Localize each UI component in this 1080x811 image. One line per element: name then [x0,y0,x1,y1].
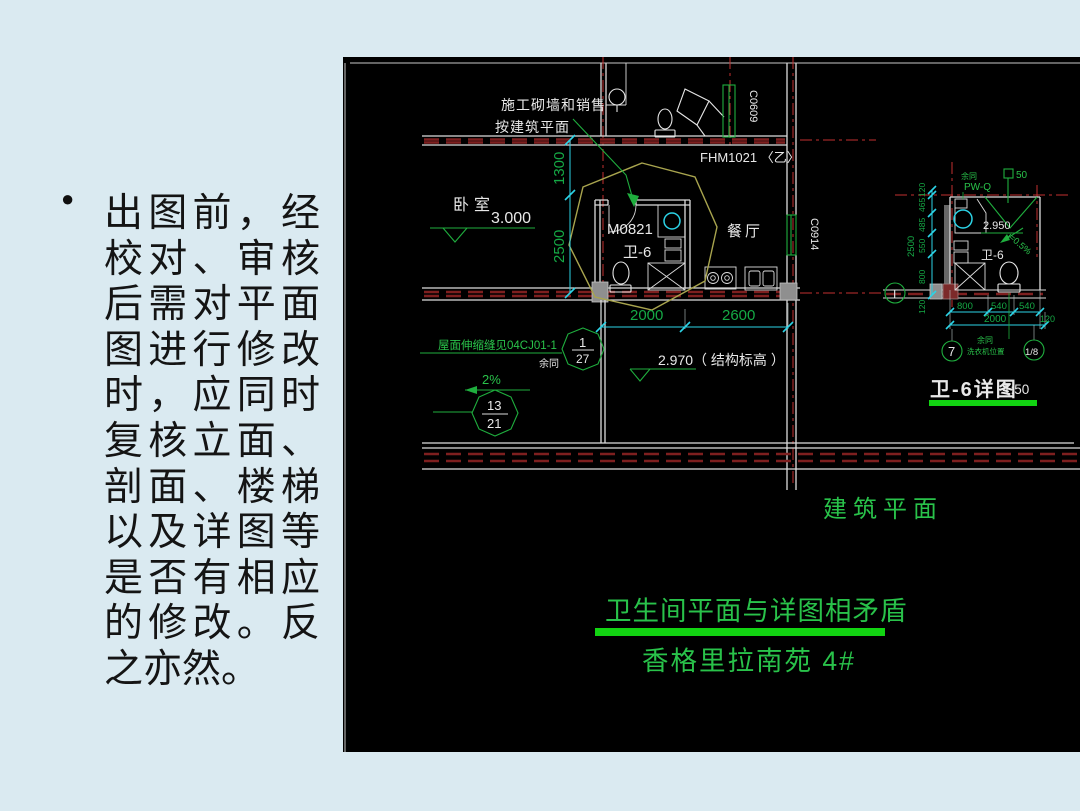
dim-left-465: 465 [917,198,927,212]
callout-13-21-den: 21 [487,416,501,431]
window-tag-c0609: C0609 [747,90,759,122]
stove-symbol [705,267,736,289]
bullet-dot: ● [61,186,74,212]
cad-screenshot: 施工砌墙和销售 按建筑平面 1300 2500 卧室 3.000 FHM1021… [343,57,1080,752]
pipe-tag-pwq: PW-Q [964,182,991,193]
body-line: 以及详图等 [104,510,320,556]
pipe-size-50: 50 [1016,170,1028,181]
construction-note-line2: 按建筑平面 [495,119,570,135]
expansion-joint-note: 屋面伸缩缝见04CJ01-1 [438,338,557,352]
washbasin-symbol [609,89,625,105]
sink-symbol [745,267,777,290]
room-label-bath: 卫-6 [623,244,651,261]
body-line: 之亦然。 [104,647,320,693]
presentation-slide: ● 出图前，经 校对、审核 后需对平面 图进行修改 时，应同时 复核立面、 剖面… [0,0,1080,811]
window-tag-c0914: C0914 [808,218,820,250]
dim-2500: 2500 [551,230,568,263]
dim-left-485: 485 [917,218,927,232]
detail-note-b1: 余同 [977,335,993,345]
grid-bubble-7-label: 7 [948,344,955,359]
body-line: 复核立面、 [104,419,320,465]
callout-1-27-den: 27 [576,352,590,366]
detail-fixtures [954,199,1020,292]
corner-shower-symbol [677,89,709,125]
body-line: 后需对平面 [104,282,320,328]
caption-project: 香格里拉南苑 4# [642,646,856,676]
cad-drawing: 施工砌墙和销售 按建筑平面 1300 2500 卧室 3.000 FHM1021… [343,57,1080,752]
level-symbol-bedroom [430,228,535,242]
body-line: 是否有相应 [104,556,320,602]
shower-symbol [648,263,685,290]
caption-plan: 建筑平面 [823,496,943,523]
dim-bottom-total-2000: 2000 [984,314,1007,325]
horizontal-dimension [596,303,793,332]
slope-2pct: 2% [482,372,501,387]
body-line: 的修改。反 [104,601,320,647]
grid-bubble-t-label: T [891,287,899,301]
toilet-symbol [658,109,672,129]
body-line: 出图前，经 [104,191,320,237]
dim-2600: 2600 [722,307,755,324]
callout-13-21-num: 13 [487,398,501,413]
door-tag-m0821: M0821 [607,221,653,238]
window-c0609-symbol [723,85,735,137]
detail-note-b2: 洗衣机位置 [967,346,1005,356]
door-tag-fhm1021: FHM1021 〈乙〉 [700,150,800,165]
room-label-bedroom: 卧室 [453,196,495,214]
level-3000: 3.000 [491,210,531,227]
washbasin-symbol [664,213,680,229]
body-line: 图进行修改 [104,328,320,374]
level-2970: 2.970（ 结构标高 ） [658,352,785,368]
body-line: 时，应同时 [104,373,320,419]
caption-issue: 卫生间平面与详图相矛盾 [605,596,908,626]
construction-note-line1: 施工砌墙和销售 [501,97,606,113]
grid-centerlines [603,57,1068,485]
window-c0914-symbol [787,215,796,255]
callout-13-21 [433,390,518,436]
body-text-block: 出图前，经 校对、审核 后需对平面 图进行修改 时，应同时 复核立面、 剖面、楼… [104,191,320,693]
vanity-counter [658,205,685,237]
dim-1300: 1300 [551,152,568,185]
slope-arrow [465,386,530,394]
body-line: 校对、审核 [104,237,320,283]
dim-bottom-800: 800 [957,301,973,312]
toilet-symbol [613,262,629,284]
room-label-dining: 餐厅 [727,223,763,240]
detail-scale: 1:50 [1003,382,1029,397]
kitchen-fixtures [705,267,777,290]
callout-1-27-num: 1 [579,335,586,350]
body-line: 剖面、楼梯 [104,465,320,511]
dim-bottom-extra-120: 120 [1040,314,1055,324]
dim-2000: 2000 [630,307,663,324]
level-2950: 2.950 [983,220,1011,232]
toilet-symbol [1000,262,1018,284]
detail-note-rest-same: 余同 [961,171,977,181]
level-symbol-structural [630,369,696,381]
slope-i05: i=0.5% [1006,231,1034,257]
dim-left-total-2500: 2500 [906,236,917,257]
washbasin-symbol [954,210,972,228]
dim-left-800: 800 [917,270,927,284]
dim-left-550: 550 [917,239,927,253]
detail-title-underline [929,400,1037,406]
detail-left-dimension [928,186,936,299]
caption-issue-underline [595,628,885,636]
dim-left-extra-120: 120 [917,300,927,314]
detail-room-label: 卫-6 [981,248,1004,262]
dim-bottom-540b: 540 [1019,301,1035,312]
note-rest-same: 余同 [539,357,559,370]
dim-bottom-540a: 540 [991,301,1007,312]
dim-left-120: 120 [917,183,927,197]
detail-pipe [1004,169,1013,203]
grid-bubble-1-8-label: 1/8 [1025,347,1038,358]
shower-symbol [955,263,985,290]
